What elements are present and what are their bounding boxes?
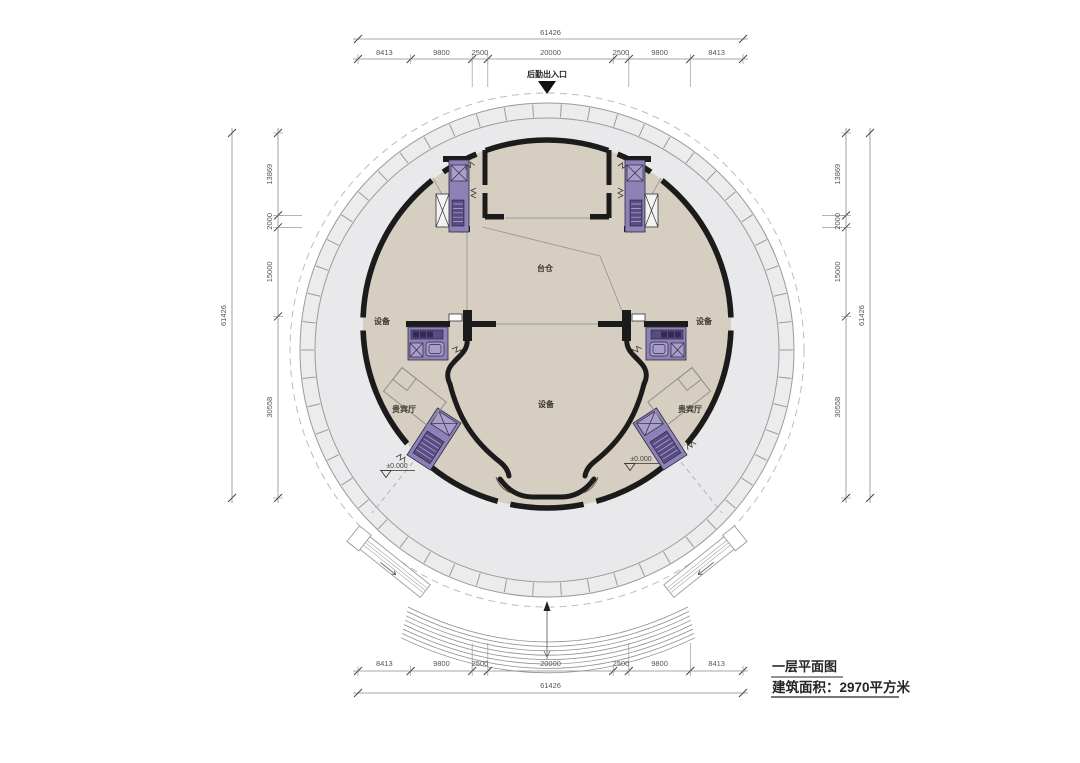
level-value: ±0.000 — [630, 456, 651, 463]
dim-label: 61426 — [540, 681, 561, 690]
dim-label: 20000 — [540, 48, 561, 57]
label-vip-left: 贵宾厅 — [392, 404, 416, 414]
label-vip-right: 贵宾厅 — [678, 404, 702, 414]
dim-label: 30558 — [833, 397, 842, 418]
dim-label: 15000 — [265, 261, 274, 282]
dim-chain-vertical: 1386920001500030558 — [822, 128, 851, 503]
step-arc — [405, 620, 691, 655]
dim-label: 2000 — [833, 213, 842, 230]
dim-label: 2500 — [472, 659, 489, 668]
entrance-label: 后勤出入口 — [527, 69, 567, 79]
dim-total-vertical: 61426 — [219, 128, 236, 503]
dim-label: 61426 — [540, 28, 561, 37]
axis-arrowhead — [544, 601, 551, 611]
dim-label: 2500 — [613, 48, 630, 57]
dim-label: 13869 — [265, 164, 274, 185]
dim-label: 13869 — [833, 164, 842, 185]
floor-plan-sheet: 台仓 设备 设备 设备 贵宾厅 贵宾厅 ±0.000 ±0.000 后勤出入口 … — [0, 0, 1080, 763]
wall-opening-inner — [727, 318, 731, 331]
dim-chain-vertical: 1386920001500030558 — [265, 128, 302, 503]
label-equipment-right: 设备 — [696, 316, 713, 326]
core-mid-left — [408, 327, 448, 360]
title-block: 一层平面图 建筑面积：2970平方米 — [771, 659, 911, 697]
dim-label: 61426 — [857, 305, 866, 326]
wall-opening — [359, 318, 367, 331]
dim-total-vertical: 61426 — [857, 128, 874, 503]
dim-total-horizontal: 61426 — [353, 681, 748, 697]
dim-label: 9800 — [433, 659, 450, 668]
dim-label: 8413 — [376, 659, 393, 668]
dim-label: 9800 — [651, 48, 668, 57]
dim-label: 9800 — [433, 48, 450, 57]
label-equipment-bottom: 设备 — [538, 399, 555, 409]
wall-opening-inner — [363, 318, 367, 331]
step-arc — [408, 607, 688, 642]
step-arc — [406, 616, 690, 651]
dim-label: 2000 — [265, 213, 274, 230]
dim-label: 20000 — [540, 659, 561, 668]
dim-label: 30558 — [265, 397, 274, 418]
floor-plan-drawing: 台仓 设备 设备 设备 贵宾厅 贵宾厅 ±0.000 ±0.000 后勤出入口 … — [0, 0, 1080, 763]
label-equipment-left: 设备 — [374, 316, 391, 326]
dim-label: 61426 — [219, 305, 228, 326]
bottom-axis-marker — [544, 601, 551, 659]
dim-label: 2500 — [472, 48, 489, 57]
area-line: 建筑面积：2970平方米 — [771, 679, 911, 695]
door-leaf — [632, 314, 645, 321]
level-value: ±0.000 — [386, 463, 407, 470]
label-stage-pit: 台仓 — [537, 263, 554, 273]
entrance-annotation: 后勤出入口 — [527, 69, 567, 94]
wall-opening-outer — [359, 318, 363, 331]
plan-title: 一层平面图 — [772, 659, 837, 674]
wall-opening-outer — [731, 318, 735, 331]
dim-chain-horizontal: 84139800250020000250098008413 — [353, 643, 748, 676]
dim-label: 8413 — [708, 48, 725, 57]
dim-label: 9800 — [651, 659, 668, 668]
wall-opening — [727, 318, 735, 331]
dim-label: 2500 — [613, 659, 630, 668]
dim-total-horizontal: 61426 — [353, 28, 748, 43]
dim-label: 8413 — [376, 48, 393, 57]
dim-label: 15000 — [833, 261, 842, 282]
step-arc — [407, 611, 689, 646]
door-leaf — [449, 314, 462, 321]
dim-label: 8413 — [708, 659, 725, 668]
entrance-arrow-icon — [538, 81, 556, 94]
core-mid-right — [646, 327, 686, 360]
